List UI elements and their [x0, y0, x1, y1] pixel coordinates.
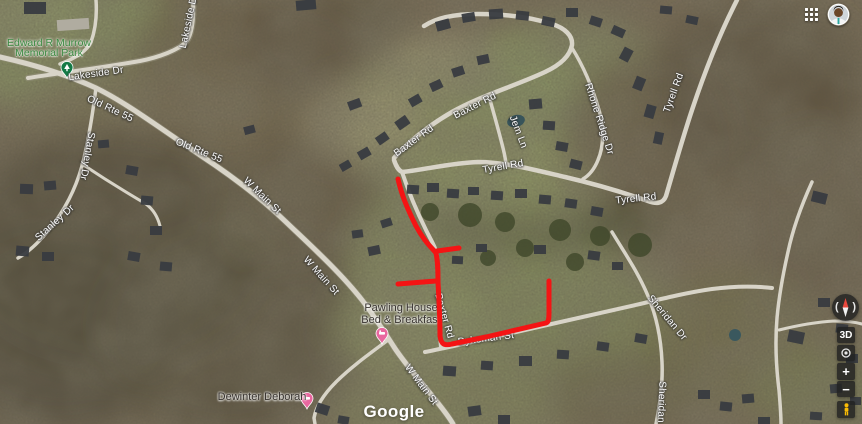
google-logo[interactable]: Google: [364, 402, 425, 422]
user-avatar[interactable]: [827, 3, 850, 26]
my-location-button[interactable]: [837, 345, 855, 361]
google-maps-satellite-view[interactable]: Lakeside DrLakeside DrOld Rte 55Old Rte …: [0, 0, 862, 424]
pegman-button[interactable]: [837, 401, 855, 418]
zoom-out-button[interactable]: −: [837, 381, 855, 397]
profile-photo-icon: [827, 3, 850, 26]
street-view-pegman-icon: [841, 403, 852, 416]
compass-needle-icon: [832, 294, 859, 321]
zoom-in-button[interactable]: +: [837, 363, 855, 380]
compass-control[interactable]: ( ): [832, 294, 859, 321]
apps-grid-icon[interactable]: [805, 8, 819, 22]
crosshair-dot-icon: [840, 347, 852, 359]
tilt-3d-button[interactable]: 3D: [837, 327, 855, 343]
